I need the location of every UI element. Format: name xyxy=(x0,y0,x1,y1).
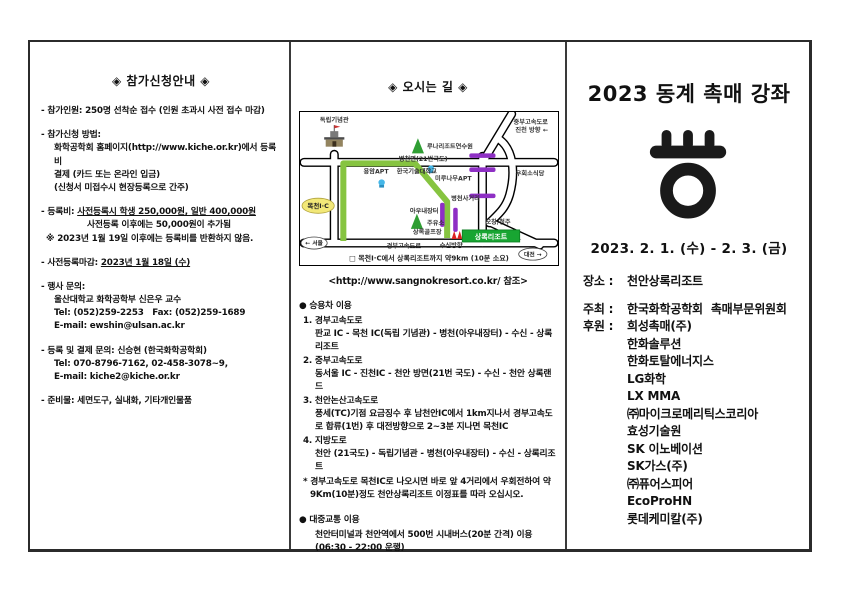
seoul-label: ← 서울 xyxy=(305,239,323,247)
event-contact-email: E-mail: ewshin@ulsan.ac.kr xyxy=(41,320,281,333)
deadline-prefix: - 사전등록마감: xyxy=(41,258,101,268)
directions-column: ◈ 오시는 길 ◈ xyxy=(289,42,567,549)
gyeongbu-expwy-label: 경부고속도로 xyxy=(387,242,422,250)
apply-method-head: - 참가신청 방법: xyxy=(41,129,281,142)
supplies-text: - 준비물: 세면도구, 실내화, 기타개인물품 xyxy=(41,395,281,408)
event-contact-head: - 행사 문의: xyxy=(41,281,281,294)
event-column: 2023 동계 촉매 강좌 2023. 2. 1. (수) - 2. 3. (금… xyxy=(567,42,809,549)
ochang-cheongju-label: 오창/청주 xyxy=(485,218,510,226)
sponsor-row: 후원 : 희성촉매(주) 한화솔루션 한화토탈에너지스 LG화학 LX MMA … xyxy=(583,318,795,528)
gas-station-label: 주유소 xyxy=(427,219,444,227)
jungbu-dir-label: 진천 방향 ← xyxy=(515,126,548,134)
sponsor-item: EcoProHN xyxy=(627,493,758,511)
sponsor-item: LG화학 xyxy=(627,371,758,389)
fountain-icon xyxy=(378,179,384,187)
host-row: 주최 : 한국화학공학회 촉매부문위원회 xyxy=(583,301,795,319)
mokcheon-ic-label: 목천I·C xyxy=(307,201,329,210)
transit-body: 천안터미널과 천안역에서 500번 시내버스(20분 간격) 이용 (06:30… xyxy=(299,529,557,555)
payment-contact-head: - 등록 및 결제 문의: 신승현 (한국화학공학회) xyxy=(41,345,281,358)
yongam-apt-label: 용암APT xyxy=(363,167,389,175)
page-title: 2023 동계 촉매 강좌 xyxy=(583,78,795,108)
sponsor-item: ㈜퓨어스피어 xyxy=(627,476,758,494)
fee-item: - 등록비: 사전등록시 학생 250,000원, 일반 400,000원 사전… xyxy=(41,206,281,246)
venue-label: 장소 : xyxy=(583,273,627,291)
route4-body: 천안 (21국도) - 독립기념관 - 병천(아우내장터) - 수신 - 상록리… xyxy=(299,448,557,474)
route3-body: 풍세(TC)기점 요금징수 후 남천안IC에서 1km지나서 경부고속도로 합류… xyxy=(299,408,557,434)
sangnok-golf-label: 상록골프장 xyxy=(413,228,442,236)
luna-center-label: 루나리조트연수원 xyxy=(427,142,473,150)
route2-head: 2. 중부고속도로 xyxy=(299,355,557,368)
car-directions: ● 승용차 이용 1. 경부고속도로 판교 IC - 목천 IC(독립 기념관)… xyxy=(299,300,557,502)
payment-contact-tel: Tel: 070-8796-7162, 02-458-3078~9, xyxy=(41,358,281,371)
sponsor-item: 롯데케미칼(주) xyxy=(627,511,758,529)
resort-flag-icons xyxy=(452,231,463,239)
independence-hall-icon xyxy=(324,125,344,147)
sponsor-item: 희성촉매(주) xyxy=(627,318,758,336)
sponsor-label: 후원 : xyxy=(583,318,627,528)
route2-body: 동서울 IC - 진천IC - 천안 방면(21번 국도) - 수신 - 천안 … xyxy=(299,368,557,394)
car-header: ● 승용차 이용 xyxy=(299,300,557,313)
route4-head: 4. 지방도로 xyxy=(299,435,557,448)
aunae-market-label: 아우내장터 xyxy=(410,207,439,215)
transit-header: ● 대중교통 이용 xyxy=(299,514,557,527)
sponsor-item: LX MMA xyxy=(627,388,758,406)
transit-directions: ● 대중교통 이용 천안터미널과 천안역에서 500번 시내버스(20분 간격)… xyxy=(299,514,557,555)
korea-tech-label: 한국기술대학교 xyxy=(397,167,437,175)
deadline-item: - 사전등록마감: 2023년 1월 18일 (수) xyxy=(41,257,281,270)
map-svg: 목천I·C 상록리조트 ← 서울 대전 → 독립기념관 중부고속도로 진천 방향… xyxy=(300,112,558,265)
susin-dir-label: 수신방향 xyxy=(440,242,463,250)
map: 목천I·C 상록리조트 ← 서울 대전 → 독립기념관 중부고속도로 진천 방향… xyxy=(299,111,559,266)
sponsor-item: ㈜마이크로메리틱스코리아 xyxy=(627,406,758,424)
restaurant-label: 우회소식당 xyxy=(516,169,545,177)
route1-body: 판교 IC - 목천 IC(독립 기념관) - 병천(아우내장터) - 수신 -… xyxy=(299,328,557,354)
tree-icon xyxy=(412,138,424,153)
sponsor-item: 한화솔루션 xyxy=(627,336,758,354)
map-caption: □ 목천I·C에서 상록리조트까지 약9km (10분 소요) xyxy=(349,254,509,263)
resort-url-reference: <http://www.sangnokresort.co.kr/ 참조> xyxy=(299,273,557,287)
apply-method-line3: (신청서 미접수시 현장등록으로 간주) xyxy=(41,182,281,195)
event-contact-name: 울산대학교 화학공학부 신은우 교수 xyxy=(41,294,281,307)
independence-hall-label: 독립기념관 xyxy=(320,116,349,124)
jungbu-expwy-label: 중부고속도로 xyxy=(514,118,549,126)
fee-line2: 사전등록 이후에는 50,000원이 추가됨 xyxy=(41,219,281,232)
byeongcheon-crossing-label: 병천사거리 xyxy=(451,195,480,203)
sponsor-item: SK가스(주) xyxy=(627,458,758,476)
registration-column: ◈ 참가신청안내 ◈ - 참가인원: 250명 선착순 접수 (인원 초과시 사… xyxy=(30,42,289,549)
sangnok-resort-label: 상록리조트 xyxy=(475,232,508,241)
apply-method-line2: 결제 (카드 또는 온라인 입금) xyxy=(41,169,281,182)
sponsor-list: 희성촉매(주) 한화솔루션 한화토탈에너지스 LG화학 LX MMA ㈜마이크로… xyxy=(627,318,758,528)
sponsor-item: 효성기술원 xyxy=(627,423,758,441)
miruna-apt-label: 미루나무APT xyxy=(435,175,472,183)
event-date: 2023. 2. 1. (수) - 2. 3. (금) xyxy=(583,237,795,257)
route3-head: 3. 천안논산고속도로 xyxy=(299,395,557,408)
deadline-date: 2023년 1월 18일 (수) xyxy=(101,258,190,268)
exit-note: * 경부고속도로 목천IC로 나오시면 바로 앞 4거리에서 우회전하여 약 9… xyxy=(299,476,557,502)
venue-row: 장소 : 천안상록리조트 xyxy=(583,273,795,291)
daejeon-label: 대전 → xyxy=(524,250,542,258)
event-contact-item: - 행사 문의: 울산대학교 화학공학부 신은우 교수 Tel: (052)25… xyxy=(41,281,281,334)
route1-head: 1. 경부고속도로 xyxy=(299,315,557,328)
host-label: 주최 : xyxy=(583,301,627,319)
catalysis-hieut-logo-icon xyxy=(649,130,729,220)
sponsor-item: 한화토탈에너지스 xyxy=(627,353,758,371)
fee-line1: - 등록비: 사전등록시 학생 250,000원, 일반 400,000원 xyxy=(41,206,281,219)
payment-contact-email: E-mail: kiche2@kiche.or.kr xyxy=(41,371,281,384)
event-info: 장소 : 천안상록리조트 주최 : 한국화학공학회 촉매부문위원회 후원 : 희… xyxy=(583,273,795,528)
supplies-item: - 준비물: 세면도구, 실내화, 기타개인물품 xyxy=(41,395,281,408)
fee-amounts: 사전등록시 학생 250,000원, 일반 400,000원 xyxy=(77,207,256,217)
venue-value: 천안상록리조트 xyxy=(627,273,703,291)
sponsor-item: SK 이노베이션 xyxy=(627,441,758,459)
tree-icon xyxy=(411,214,423,229)
participants-text: - 참가인원: 250명 선착순 접수 (인원 초과시 사전 접수 마감) xyxy=(41,105,281,118)
fee-prefix: - 등록비: xyxy=(41,207,77,217)
apply-method-item: - 참가신청 방법: 화학공학회 홈페이지(http://www.kiche.o… xyxy=(41,129,281,195)
registration-title: ◈ 참가신청안내 ◈ xyxy=(41,72,281,89)
host-value: 한국화학공학회 촉매부문위원회 xyxy=(627,301,787,319)
event-contact-tel: Tel: (052)259-2253 Fax: (052)259-1689 xyxy=(41,307,281,320)
pamphlet-sheet: ◈ 참가신청안내 ◈ - 참가인원: 250명 선착순 접수 (인원 초과시 사… xyxy=(28,40,812,552)
byeongcheon-road-label: 병천면(21번국도) xyxy=(399,155,448,163)
payment-contact-item: - 등록 및 결제 문의: 신승현 (한국화학공학회) Tel: 070-879… xyxy=(41,345,281,385)
directions-title: ◈ 오시는 길 ◈ xyxy=(299,78,557,95)
deadline-line: - 사전등록마감: 2023년 1월 18일 (수) xyxy=(41,257,281,270)
participants-item: - 참가인원: 250명 선착순 접수 (인원 초과시 사전 접수 마감) xyxy=(41,105,281,118)
fee-refund-note: ※ 2023년 1월 19일 이후에는 등록비를 반환하지 않음. xyxy=(41,233,281,246)
apply-method-line1: 화학공학회 홈페이지(http://www.kiche.or.kr)에서 등록비 xyxy=(41,142,281,168)
